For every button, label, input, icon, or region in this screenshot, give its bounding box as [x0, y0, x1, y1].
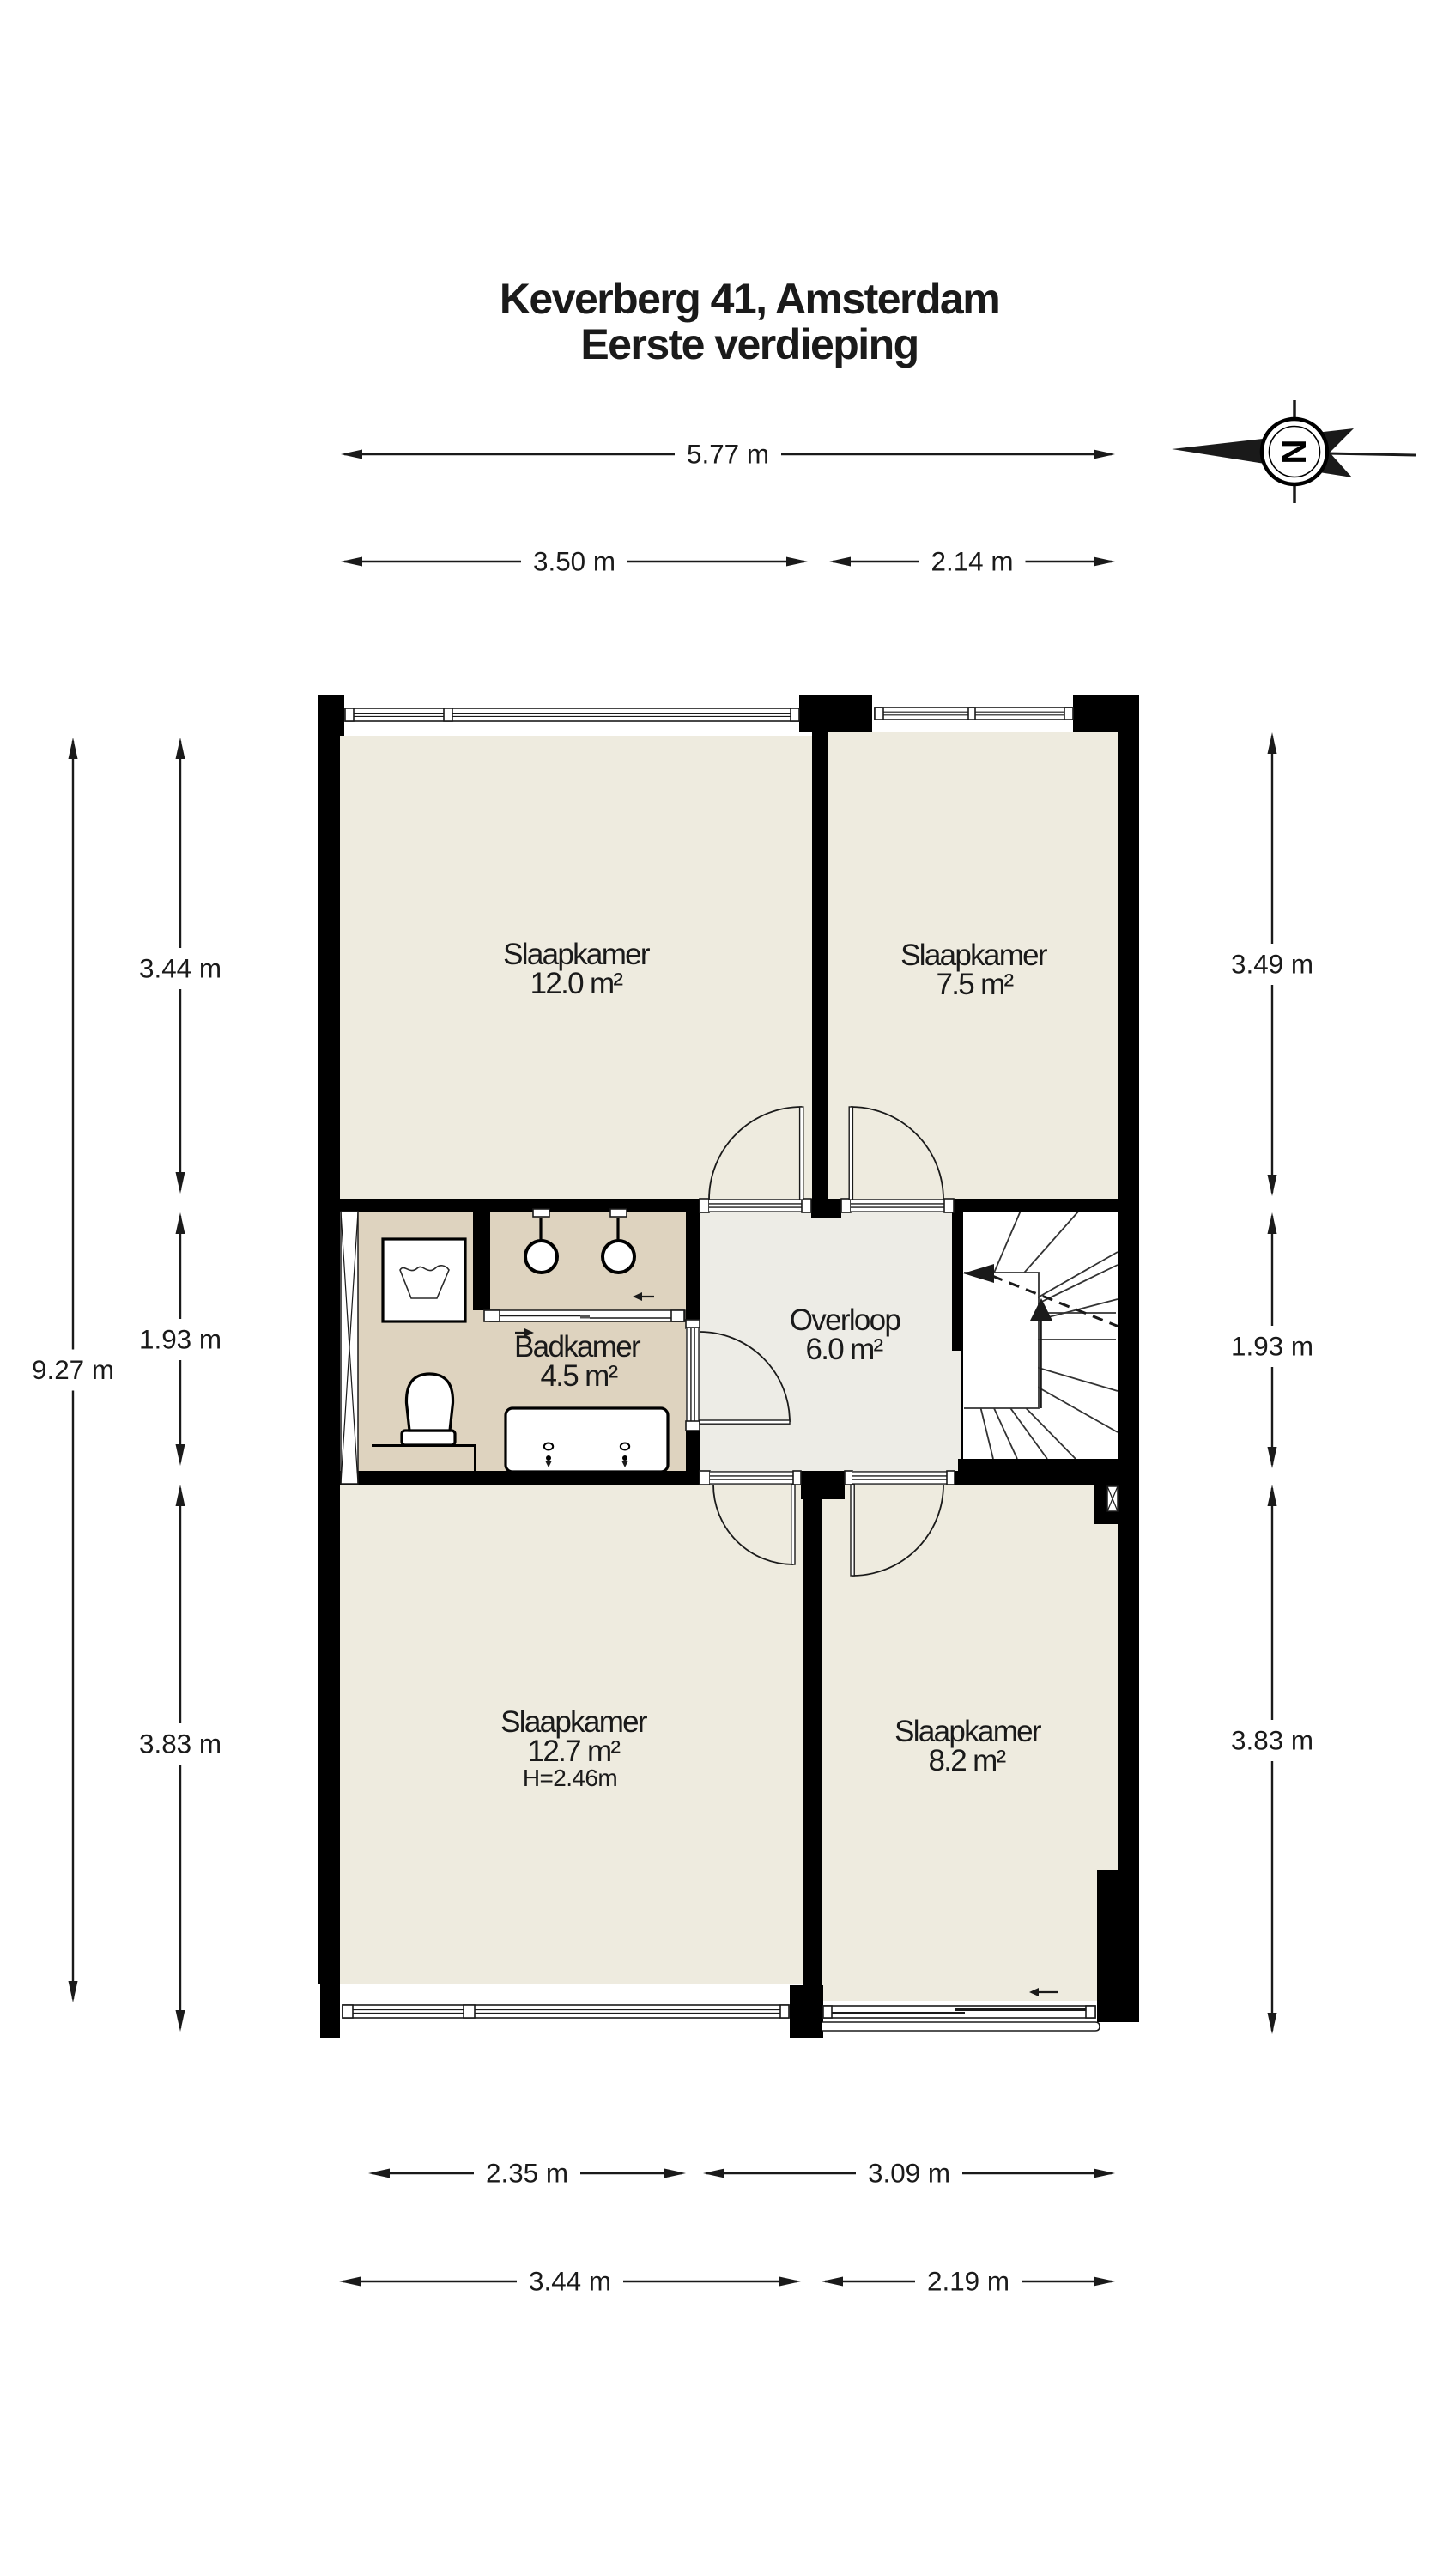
- svg-text:6.0 m²: 6.0 m²: [806, 1333, 883, 1366]
- svg-text:4.5 m²: 4.5 m²: [541, 1359, 618, 1393]
- svg-text:8.2 m²: 8.2 m²: [929, 1744, 1006, 1777]
- svg-text:Eerste verdieping: Eerste verdieping: [580, 320, 918, 368]
- svg-text:3.50 m: 3.50 m: [533, 547, 615, 577]
- svg-text:3.44 m: 3.44 m: [529, 2267, 611, 2297]
- svg-text:3.49 m: 3.49 m: [1231, 950, 1313, 980]
- svg-text:N: N: [1276, 440, 1313, 465]
- svg-text:3.44 m: 3.44 m: [139, 954, 221, 984]
- svg-text:3.83 m: 3.83 m: [1231, 1726, 1313, 1756]
- svg-text:3.09 m: 3.09 m: [868, 2159, 950, 2189]
- svg-text:Keverberg 41, Amsterdam: Keverberg 41, Amsterdam: [500, 275, 999, 323]
- svg-text:2.14 m: 2.14 m: [931, 547, 1014, 577]
- svg-text:2.35 m: 2.35 m: [486, 2159, 568, 2189]
- svg-text:12.7 m²: 12.7 m²: [528, 1735, 621, 1768]
- svg-text:7.5 m²: 7.5 m²: [937, 968, 1014, 1001]
- svg-text:1.93 m: 1.93 m: [139, 1325, 221, 1355]
- svg-text:5.77 m: 5.77 m: [687, 440, 769, 470]
- svg-text:12.0 m²: 12.0 m²: [530, 967, 623, 1000]
- svg-text:H=2.46m: H=2.46m: [523, 1765, 617, 1791]
- svg-text:1.93 m: 1.93 m: [1231, 1332, 1313, 1362]
- svg-text:9.27 m: 9.27 m: [32, 1355, 114, 1385]
- svg-text:2.19 m: 2.19 m: [927, 2267, 1009, 2297]
- svg-text:3.83 m: 3.83 m: [139, 1729, 221, 1759]
